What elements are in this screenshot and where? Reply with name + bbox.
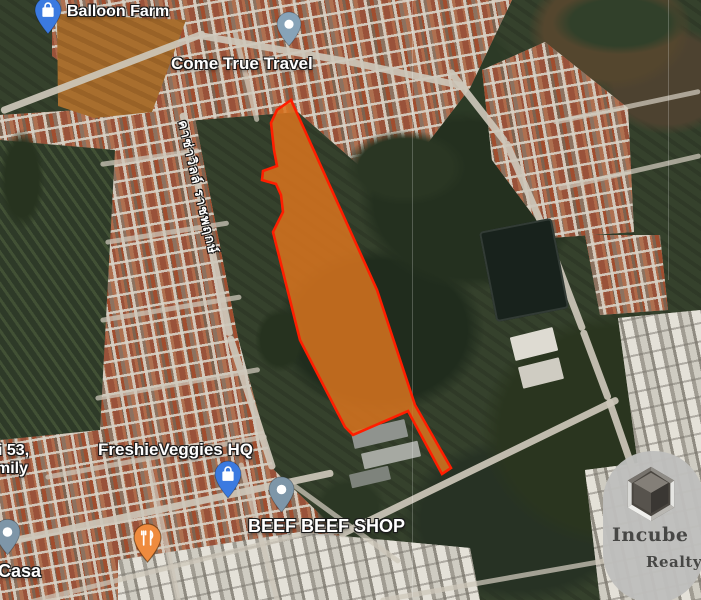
parcel-polygon (262, 100, 451, 474)
come-true-travel-pin[interactable] (277, 12, 301, 46)
satellite-map[interactable]: คาซ่าวิลล์ ราชพฤกษ์ Balloon Farm Come Tr… (0, 0, 701, 600)
dot-icon (3, 527, 13, 537)
freshie-veggies-pin[interactable] (215, 461, 241, 498)
dot-icon (284, 20, 293, 29)
casa-pin[interactable] (0, 518, 20, 556)
poi-label-come-true-travel[interactable]: Come True Travel (171, 54, 313, 74)
poi-label-family[interactable]: mily (0, 460, 28, 478)
watermark-brand: Incube (612, 524, 692, 546)
poi-label-balloon-farm[interactable]: Balloon Farm (67, 3, 169, 21)
poi-label-casa[interactable]: Casa (0, 561, 41, 582)
poi-label-beef-beef-shop[interactable]: BEEF BEEF SHOP (248, 516, 405, 537)
dot-icon (277, 485, 287, 495)
balloon-farm-pin[interactable] (35, 0, 61, 34)
poi-label-soi-53[interactable]: i 53, (0, 442, 29, 460)
parcel-overlay (0, 0, 701, 600)
restaurant-pin[interactable] (134, 523, 161, 563)
poi-label-freshie-veggies[interactable]: FreshieVeggies HQ (98, 440, 253, 460)
watermark-brand-2: Realty (646, 553, 701, 571)
cube-icon (622, 464, 680, 524)
beef-beef-shop-pin[interactable] (269, 476, 294, 513)
